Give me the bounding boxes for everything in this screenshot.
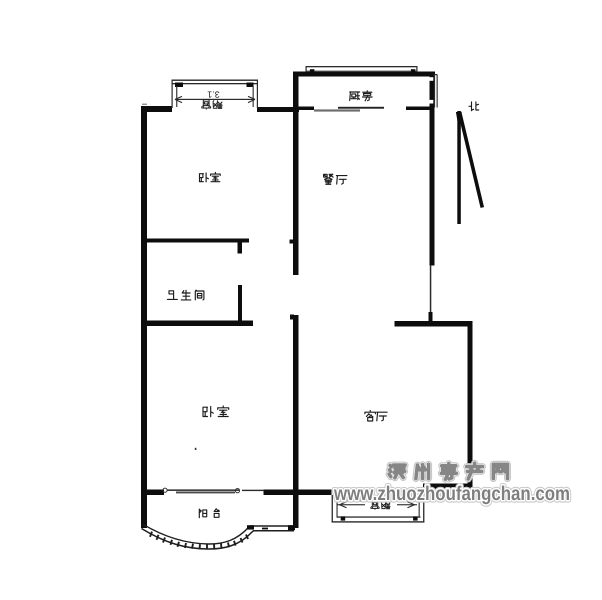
svg-text:3.1: 3.1 xyxy=(207,89,220,99)
svg-text:www.zhuozhoufangchan.com: www.zhuozhoufangchan.com xyxy=(333,483,570,505)
